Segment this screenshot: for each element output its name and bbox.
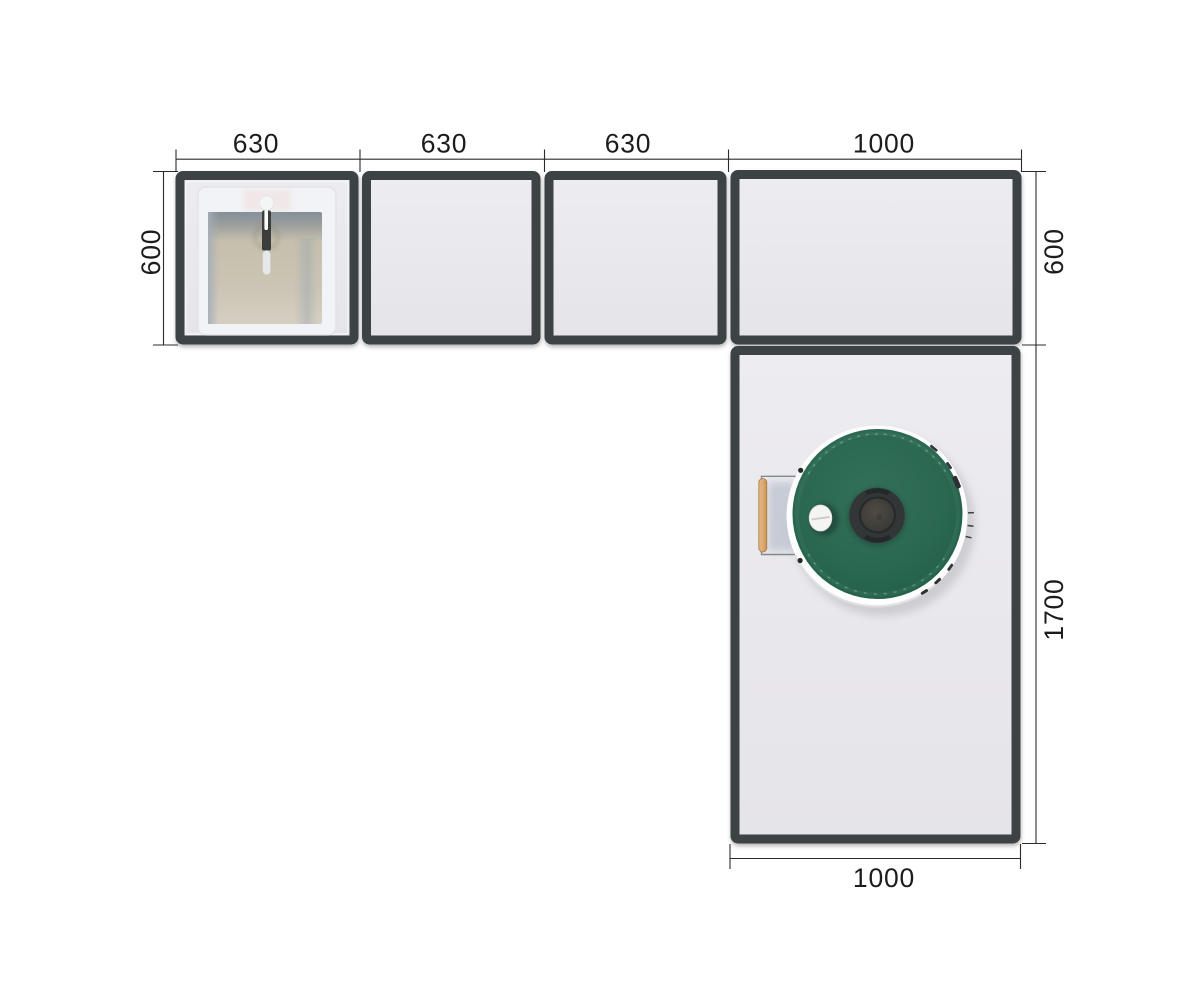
svg-text:600: 600 <box>136 229 166 276</box>
svg-text:630: 630 <box>421 129 468 159</box>
svg-text:630: 630 <box>605 129 652 159</box>
svg-text:1700: 1700 <box>1039 578 1069 640</box>
svg-text:1000: 1000 <box>853 129 915 159</box>
svg-text:630: 630 <box>233 129 280 159</box>
svg-text:1000: 1000 <box>853 863 915 893</box>
svg-text:600: 600 <box>1039 228 1069 275</box>
